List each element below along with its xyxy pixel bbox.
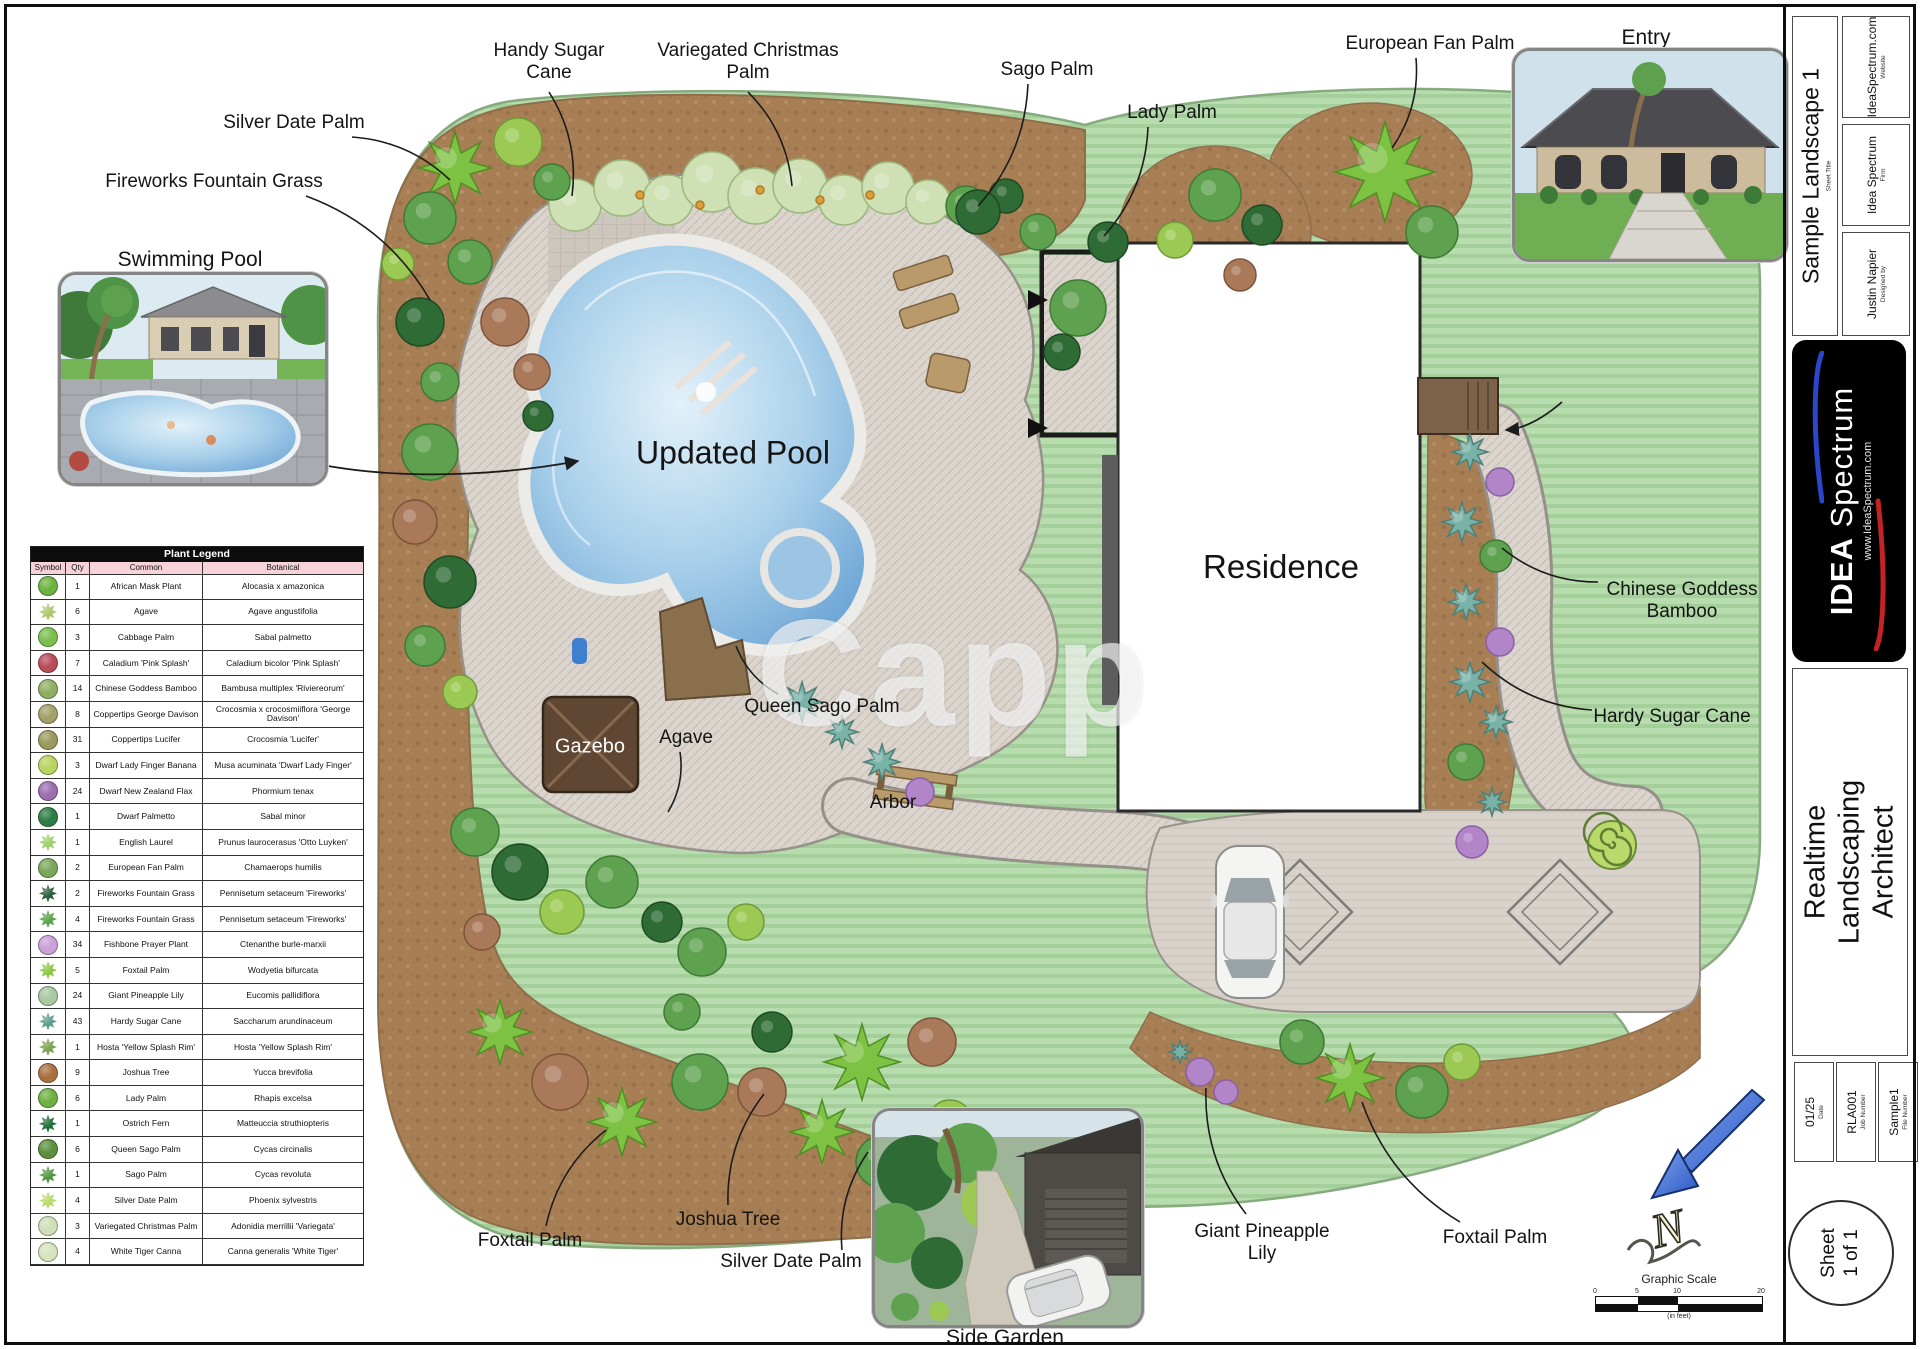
plant-highlight: [542, 172, 553, 183]
plant-highlight: [761, 1020, 773, 1032]
plant-symbol: [1242, 205, 1282, 245]
plant-symbol: [1335, 122, 1435, 222]
plant-symbol: [382, 248, 414, 280]
plant-symbol: [532, 1054, 588, 1110]
landscape-plan-sheet: N Capp Handy Sugar CaneVariegated Christ…: [0, 0, 1920, 1349]
pool-float: [572, 638, 587, 664]
legend-row: 6AgaveAgave angustifolia: [31, 600, 363, 626]
plant-highlight: [966, 199, 979, 212]
designed-by-box: Justin Napier Designed by: [1842, 232, 1910, 336]
plant-symbol: [956, 190, 1000, 234]
plant-highlight: [654, 186, 669, 201]
plant-highlight: [1452, 1052, 1463, 1063]
plant-highlight: [1165, 230, 1176, 241]
plant-highlight: [530, 407, 539, 416]
designed-by-label: Designed by: [1880, 249, 1887, 319]
plant-symbol: [448, 240, 492, 284]
plant-highlight: [916, 189, 929, 202]
plant-highlight: [672, 1002, 683, 1013]
plant-highlight: [804, 1113, 823, 1132]
plant-symbol: [1189, 169, 1241, 221]
plant-symbol: [492, 844, 548, 900]
plant-highlight: [1290, 1029, 1303, 1042]
pool-table: [925, 352, 971, 394]
plant-highlight: [736, 912, 747, 923]
graphic-scale-bar-top: [1595, 1296, 1763, 1305]
plant-symbol: [393, 500, 437, 544]
plant-highlight: [1063, 292, 1080, 309]
plant-highlight: [749, 1078, 763, 1092]
plant-symbol-icon: [38, 755, 58, 775]
plant-highlight: [1408, 1077, 1424, 1093]
plant-symbol: [1480, 540, 1512, 572]
side-garden-render: [875, 1111, 1141, 1325]
label-sago-palm: Sago Palm: [1001, 59, 1094, 81]
entry-porch: [1418, 378, 1498, 434]
plant-highlight: [414, 634, 426, 646]
entry-caption: Entry: [1621, 26, 1670, 50]
plant-symbol: [824, 1024, 900, 1100]
plant-highlight: [1463, 833, 1473, 843]
firm-box: Idea Spectrum Firm: [1842, 124, 1910, 226]
legend-row: 1Dwarf PalmettoSabal minor: [31, 804, 363, 830]
plant-symbol: [481, 298, 529, 346]
legend-row: 7Caladium 'Pink Splash'Caladium bicolor …: [31, 651, 363, 677]
plant-symbol-icon: [38, 653, 58, 673]
legend-row: 14Chinese Goddess BambooBambusa multiple…: [31, 676, 363, 702]
plant-highlight: [451, 682, 461, 692]
legend-row: 4White Tiger CannaCanna generalis 'White…: [31, 1239, 363, 1265]
label-updated-pool: Updated Pool: [636, 434, 830, 471]
plant-symbol: [586, 856, 638, 908]
logo-text: IDEA Spectrum: [1824, 340, 1860, 662]
sheet-title-box: Sample Landscape 1 Sheet Title: [1792, 16, 1838, 336]
plant-symbol: [1280, 1020, 1324, 1064]
product-name: Realtime Landscaping Architect: [1799, 780, 1902, 944]
plant-symbol: [1486, 628, 1514, 656]
graphic-scale-units: (in feet): [1595, 1313, 1763, 1320]
swimming-pool-render: [61, 275, 325, 483]
plant-symbol: [396, 298, 444, 346]
plant-symbol: [790, 1100, 854, 1164]
legend-row: 1English LaurelPrunus laurocerasus 'Otto…: [31, 830, 363, 856]
plant-legend: Plant Legend SymbolQtyCommonBotanical 1A…: [30, 546, 364, 1266]
plant-highlight: [685, 1066, 702, 1083]
label-variegated-christmas-palm: Variegated Christmas Palm: [657, 40, 838, 84]
file-number-label: File Number: [1902, 1088, 1909, 1135]
plant-symbol: [1044, 334, 1080, 370]
plant-symbol: [494, 118, 542, 166]
plant-symbol-icon: [38, 627, 58, 647]
plant-highlight: [1487, 713, 1497, 723]
date-box: 01/25 Date: [1794, 1062, 1834, 1162]
plant-highlight: [607, 172, 624, 189]
graphic-scale-title: Graphic Scale: [1595, 1272, 1763, 1286]
plant-symbol-icon: [38, 807, 58, 827]
plant-highlight: [1331, 1058, 1351, 1078]
plant-symbol: [1444, 1044, 1480, 1080]
plant-highlight: [1358, 143, 1388, 173]
plant-highlight: [1456, 752, 1467, 763]
plant-legend-title: Plant Legend: [31, 547, 363, 562]
sheet-title-value: Sample Landscape 1: [1798, 68, 1825, 284]
plant-symbol: [1316, 1044, 1384, 1112]
date-value: 01/25: [1803, 1097, 1817, 1127]
plant-highlight: [997, 186, 1007, 196]
plant-highlight: [830, 186, 845, 201]
plant-highlight: [1418, 217, 1434, 233]
logo-blue-swoosh: [1810, 351, 1824, 651]
plant-highlight: [407, 308, 421, 322]
side-garden-inset: [872, 1108, 1144, 1328]
plant-highlight: [522, 362, 533, 373]
file-number-box: Sample1 File Number: [1878, 1062, 1918, 1162]
plant-highlight: [1451, 510, 1463, 522]
plant-symbol-icon: [39, 603, 57, 621]
label-foxtail-palm-left: Foxtail Palm: [478, 1230, 583, 1252]
plant-symbol: [816, 196, 824, 204]
plant-highlight: [1459, 670, 1471, 682]
plant-symbol: [672, 1054, 728, 1110]
plant-legend-rows: 1African Mask PlantAlocasia x amazonica6…: [31, 574, 363, 1265]
plant-highlight: [550, 899, 563, 912]
entry-inset: [1512, 48, 1788, 262]
legend-row: 6Lady PalmRhapis excelsa: [31, 1086, 363, 1112]
plant-symbol: [1169, 1041, 1191, 1063]
plant-symbol: [405, 626, 445, 666]
label-silver-date-palm-top: Silver Date Palm: [223, 112, 365, 134]
plant-symbol-icon: [39, 1166, 57, 1184]
sheet-number: Sheet 1 of 1: [1818, 1228, 1864, 1278]
plant-symbol: [1456, 826, 1488, 858]
legend-row: 43Hardy Sugar CaneSaccharum arundinaceum: [31, 1009, 363, 1035]
plant-symbol: [664, 994, 700, 1030]
plant-symbol: [1448, 744, 1484, 780]
label-joshua-tree: Joshua Tree: [676, 1209, 781, 1231]
date-label: Date: [1818, 1097, 1825, 1127]
plant-symbol: [696, 201, 704, 209]
plant-symbol: [738, 1068, 786, 1116]
plant-highlight: [482, 1013, 501, 1032]
plant-symbol: [1450, 662, 1490, 702]
label-giant-pineapple-lily: Giant Pineapple Lily: [1194, 1221, 1329, 1265]
plant-symbol: [402, 424, 458, 480]
legend-row: 8Coppertips George DavisonCrocosmia x cr…: [31, 702, 363, 728]
plant-symbol-icon: [39, 961, 57, 979]
plant-symbol-icon: [38, 781, 58, 801]
plant-highlight: [1456, 592, 1467, 603]
plant-highlight: [416, 203, 432, 219]
graphic-scale-bar-bottom: [1595, 1305, 1763, 1312]
legend-row: 1African Mask PlantAlocasia x amazonica: [31, 574, 363, 600]
legend-row: 3Dwarf Lady Finger BananaMusa acuminata …: [31, 753, 363, 779]
legend-row: 24Dwarf New Zealand FlaxPhormium tenax: [31, 779, 363, 805]
label-foxtail-palm-right: Foxtail Palm: [1443, 1227, 1548, 1249]
plant-symbol-icon: [38, 730, 58, 750]
plant-symbol-icon: [38, 986, 58, 1006]
label-residence: Residence: [1203, 548, 1359, 586]
label-european-fan-palm: European Fan Palm: [1346, 33, 1515, 55]
legend-row: 5Foxtail PalmWodyetia bifurcata: [31, 958, 363, 984]
plant-symbol: [523, 401, 553, 431]
job-number-value: RLA001: [1845, 1090, 1859, 1133]
plant-symbol-icon: [38, 1216, 58, 1236]
plant-symbol: [1020, 214, 1056, 250]
plant-symbol: [443, 675, 477, 709]
plant-highlight: [651, 910, 663, 922]
job-number-label: Job Number: [1860, 1090, 1867, 1133]
plant-highlight: [492, 308, 506, 322]
plant-symbol-icon: [38, 1088, 58, 1108]
plant-symbol: [1480, 706, 1512, 738]
north-arrow: N: [1628, 1090, 1764, 1262]
firm-label: Firm: [1880, 136, 1887, 214]
plant-highlight: [598, 867, 614, 883]
plant-symbol-icon: [38, 704, 58, 724]
legend-row: 34Fishbone Prayer PlantCtenanthe burle-m…: [31, 932, 363, 958]
plant-symbol: [1088, 222, 1128, 262]
legend-row: 2Fireworks Fountain GrassPennisetum seta…: [31, 881, 363, 907]
plant-symbol: [752, 1012, 792, 1052]
plant-symbol: [534, 164, 570, 200]
plant-symbol: [464, 914, 500, 950]
job-number-box: RLA001 Job Number: [1836, 1062, 1876, 1162]
label-handy-sugar-cane: Handy Sugar Cane: [494, 40, 605, 84]
plant-symbol: [1157, 222, 1193, 258]
plant-symbol: [468, 1000, 532, 1064]
swimming-pool-caption: Swimming Pool: [118, 248, 263, 272]
logo-red-swoosh: [1874, 351, 1888, 651]
plant-highlight: [436, 567, 452, 583]
plant-symbol: [1478, 788, 1506, 816]
label-gazebo: Gazebo: [555, 735, 625, 758]
plant-highlight: [505, 856, 522, 873]
file-number-value: Sample1: [1887, 1088, 1901, 1135]
plant-symbol-icon: [39, 1038, 57, 1056]
plant-symbol: [404, 192, 456, 244]
plant-symbol-icon: [38, 858, 58, 878]
plant-symbol-icon: [38, 1139, 58, 1159]
designed-by-value: Justin Napier: [1865, 249, 1879, 319]
logo-url: www.IdeaSpectrum.com: [1862, 340, 1874, 662]
legend-row: 31Coppertips LuciferCrocosmia 'Lucifer': [31, 728, 363, 754]
side-garden-caption: Side Garden: [946, 1326, 1064, 1349]
website-label: Website: [1880, 17, 1887, 118]
plant-highlight: [403, 509, 416, 522]
label-hardy-sugar-cane: Hardy Sugar Cane: [1593, 706, 1750, 728]
plant-symbol: [908, 1018, 956, 1066]
plant-highlight: [1251, 213, 1263, 225]
legend-row: 4Silver Date PalmPhoenix sylvestris: [31, 1188, 363, 1214]
product-name-box: Realtime Landscaping Architect: [1792, 668, 1908, 1056]
plant-highlight: [435, 147, 457, 169]
titleblock-divider: [1783, 7, 1786, 1342]
plant-symbol: [756, 186, 764, 194]
plant-highlight: [1052, 342, 1063, 353]
plant-symbol: [642, 902, 682, 942]
label-queen-sago-palm: Queen Sago Palm: [744, 696, 899, 718]
label-fireworks-fountain-grass: Fireworks Fountain Grass: [105, 171, 323, 193]
plant-symbol-icon: [38, 1063, 58, 1083]
plant-symbol-icon: [39, 1115, 57, 1133]
label-silver-date-palm-bottom: Silver Date Palm: [720, 1251, 862, 1273]
plant-highlight: [430, 371, 441, 382]
entry-render: [1515, 51, 1785, 259]
website-box: IdeaSpectrum.com Website: [1842, 16, 1910, 118]
graphic-scale-ticks: 051020: [1595, 1288, 1763, 1296]
legend-row: 1Sago PalmCycas revoluta: [31, 1163, 363, 1189]
plant-legend-header: SymbolQtyCommonBotanical: [31, 562, 363, 574]
plant-symbol: [588, 1088, 656, 1156]
plant-highlight: [462, 818, 476, 832]
plant-symbol-icon: [39, 1012, 57, 1030]
plant-highlight: [689, 938, 703, 952]
plant-highlight: [603, 1102, 623, 1122]
car: [1211, 846, 1289, 998]
plant-symbol: [1224, 259, 1256, 291]
plant-symbol: [636, 191, 644, 199]
plant-highlight: [841, 1040, 864, 1063]
plant-highlight: [545, 1066, 562, 1083]
residence-building: [1118, 243, 1420, 811]
legend-row: 1Ostrich FernMatteuccia struthiopteris: [31, 1111, 363, 1137]
plant-symbol: [424, 556, 476, 608]
pool-sparkle: [696, 382, 716, 402]
legend-row: 6Queen Sago PalmCycas circinalis: [31, 1137, 363, 1163]
label-lady-palm: Lady Palm: [1127, 102, 1217, 124]
legend-row: 4Fireworks Fountain GrassPennisetum seta…: [31, 907, 363, 933]
plant-symbol-icon: [39, 833, 57, 851]
graphic-scale: Graphic Scale 051020 (in feet): [1595, 1272, 1763, 1320]
plant-symbol: [678, 928, 726, 976]
legend-row: 2European Fan PalmChamaerops humilis: [31, 856, 363, 882]
plant-symbol: [451, 808, 499, 856]
plant-highlight: [1487, 547, 1497, 557]
plant-highlight: [785, 170, 801, 186]
label-agave: Agave: [659, 727, 713, 749]
plant-symbol: [540, 890, 584, 934]
idea-spectrum-logo: IDEA Spectrum www.IdeaSpectrum.com: [1792, 340, 1906, 662]
plant-highlight: [874, 173, 890, 189]
plant-highlight: [415, 436, 432, 453]
plant-symbol-icon: [39, 910, 57, 928]
plant-symbol: [1406, 206, 1458, 258]
plant-highlight: [919, 1028, 933, 1042]
legend-row: 1Hosta 'Yellow Splash Rim'Hosta 'Yellow …: [31, 1035, 363, 1061]
swimming-pool-inset: [58, 272, 328, 486]
plant-symbol: [1486, 468, 1514, 496]
plant-symbol-icon: [38, 576, 58, 596]
plant-highlight: [696, 165, 714, 183]
plant-symbol: [1050, 280, 1106, 336]
plant-symbol-icon: [39, 884, 57, 902]
plant-symbol: [906, 180, 950, 224]
plant-highlight: [458, 249, 471, 262]
plant-symbol-icon: [38, 1242, 58, 1262]
plant-highlight: [1028, 222, 1039, 233]
plant-symbol: [1214, 1080, 1238, 1104]
plant-symbol: [1442, 502, 1482, 542]
plant-highlight: [1460, 442, 1471, 453]
plant-symbol: [594, 160, 650, 216]
plant-highlight: [472, 922, 483, 933]
plant-highlight: [1201, 180, 1217, 196]
plant-symbol-icon: [38, 935, 58, 955]
plant-highlight: [741, 180, 758, 197]
legend-row: 3Variegated Christmas PalmAdonidia merri…: [31, 1214, 363, 1240]
plant-symbol: [1452, 434, 1488, 470]
legend-row: 24Giant Pineapple LilyEucomis pallidiflo…: [31, 984, 363, 1010]
website-value: IdeaSpectrum.com: [1865, 17, 1879, 118]
label-chinese-goddess-bamboo: Chinese Goddess Bamboo: [1606, 579, 1757, 623]
plant-symbol-icon: [39, 1192, 57, 1210]
label-arbor: Arbor: [870, 792, 916, 814]
plant-symbol: [866, 191, 874, 199]
plant-symbol: [1186, 1058, 1214, 1086]
sheet-number-circle: Sheet 1 of 1: [1788, 1200, 1894, 1306]
plant-symbol: [1396, 1066, 1448, 1118]
watermark: Capp: [756, 586, 1152, 761]
plant-highlight: [505, 128, 519, 142]
plant-symbol: [514, 354, 550, 390]
legend-row: 9Joshua TreeYucca brevifolia: [31, 1060, 363, 1086]
plant-symbol: [1448, 584, 1484, 620]
plant-symbol-icon: [38, 679, 58, 699]
sheet-title-label: Sheet Title: [1826, 68, 1833, 284]
plant-symbol: [421, 363, 459, 401]
plant-symbol: [728, 904, 764, 940]
legend-row: 3Cabbage PalmSabal palmetto: [31, 625, 363, 651]
plant-highlight: [1231, 266, 1241, 276]
firm-value: Idea Spectrum: [1865, 136, 1879, 214]
plant-symbol: [819, 175, 869, 225]
